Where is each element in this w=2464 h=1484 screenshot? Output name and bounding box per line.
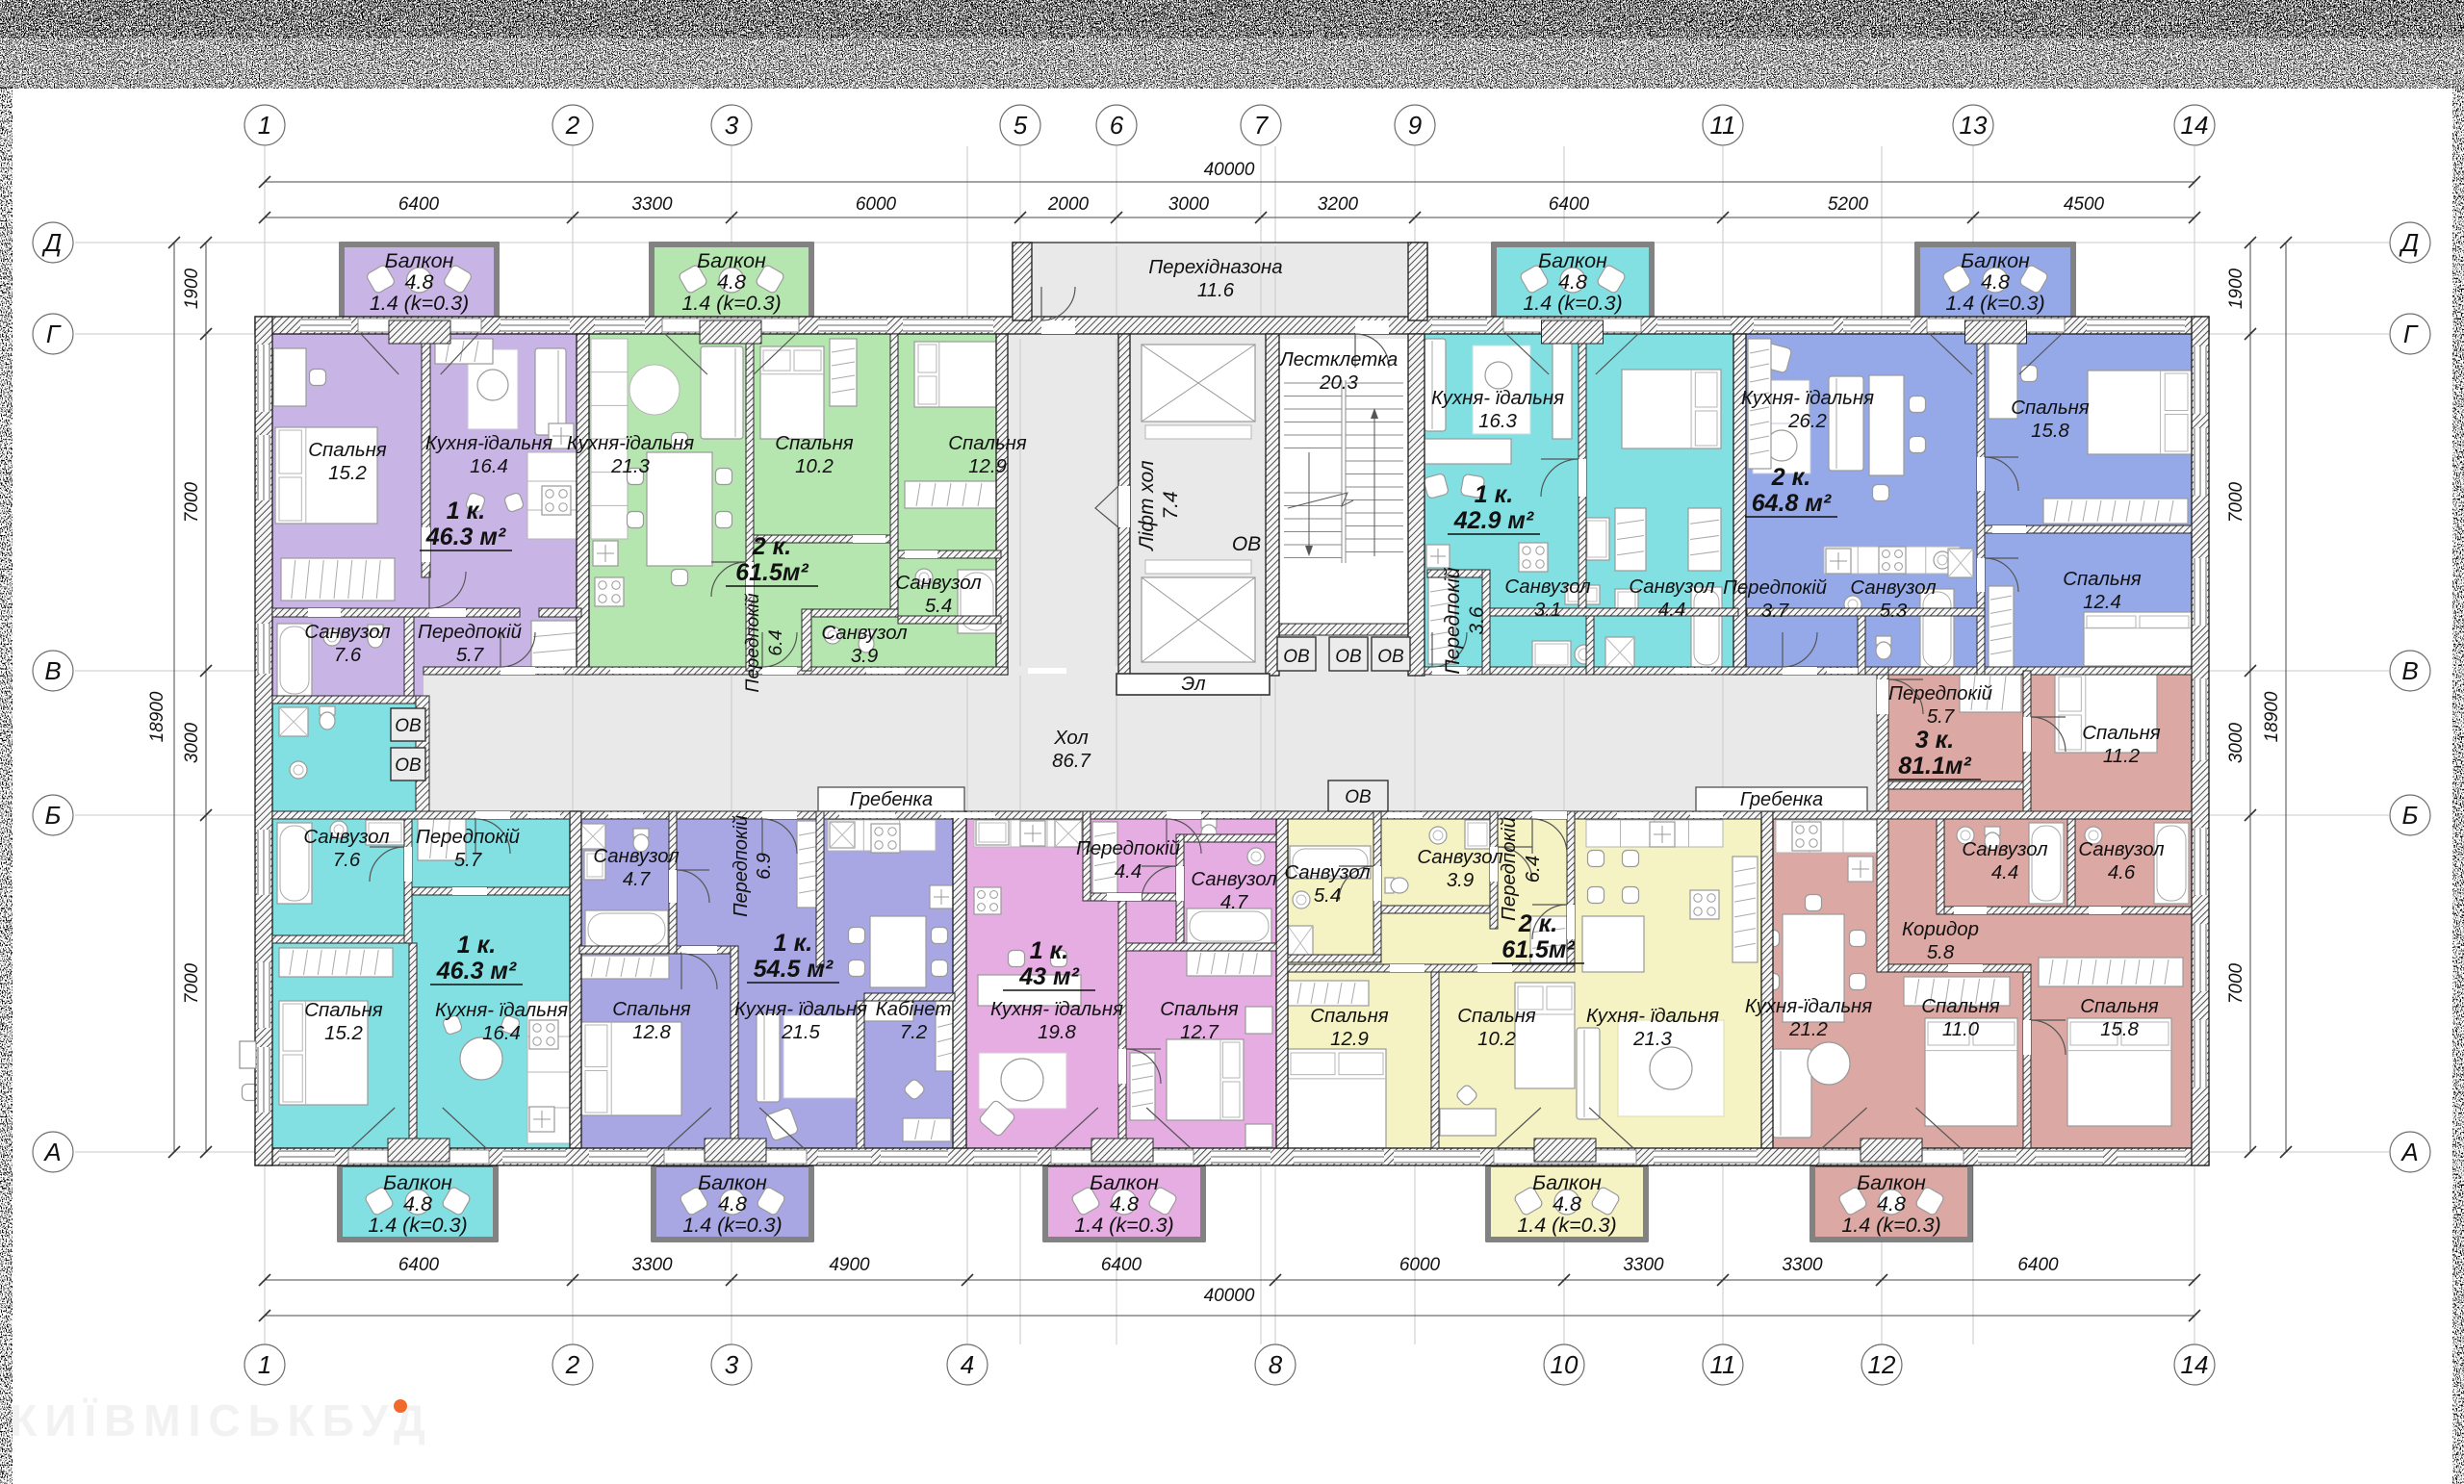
svg-text:В: В bbox=[44, 656, 61, 685]
svg-text:Передпокій: Передпокій bbox=[418, 622, 522, 643]
svg-text:14: 14 bbox=[2181, 1350, 2209, 1379]
svg-text:86.7: 86.7 bbox=[1052, 751, 1091, 772]
svg-text:7.2: 7.2 bbox=[900, 1022, 928, 1043]
svg-text:Спальня: Спальня bbox=[2080, 996, 2159, 1017]
svg-text:4.4: 4.4 bbox=[1115, 861, 1142, 883]
svg-text:21.2: 21.2 bbox=[1788, 1019, 1828, 1040]
svg-text:Балкон: Балкон bbox=[385, 249, 454, 272]
svg-text:Санвузол: Санвузол bbox=[304, 622, 391, 643]
svg-text:Спальня: Спальня bbox=[1310, 1006, 1389, 1027]
svg-text:Д: Д bbox=[41, 228, 62, 257]
svg-text:7000: 7000 bbox=[2226, 962, 2246, 1004]
svg-text:7.6: 7.6 bbox=[334, 645, 362, 666]
svg-text:2 к.: 2 к. bbox=[1518, 910, 1557, 937]
svg-text:1900: 1900 bbox=[2226, 268, 2246, 309]
svg-text:8: 8 bbox=[1269, 1350, 1283, 1379]
svg-text:6.4: 6.4 bbox=[765, 629, 786, 655]
svg-text:6.4: 6.4 bbox=[1523, 856, 1544, 883]
svg-text:3000: 3000 bbox=[1168, 194, 1210, 215]
svg-text:1.4 (k=0.3): 1.4 (k=0.3) bbox=[681, 292, 781, 315]
svg-text:18900: 18900 bbox=[2262, 691, 2282, 742]
svg-text:6400: 6400 bbox=[1549, 194, 1590, 215]
svg-text:12: 12 bbox=[1868, 1350, 1896, 1379]
svg-text:2: 2 bbox=[565, 111, 580, 140]
svg-text:А: А bbox=[42, 1138, 61, 1166]
svg-text:4500: 4500 bbox=[2064, 194, 2105, 215]
svg-text:1.4 (k=0.3): 1.4 (k=0.3) bbox=[1841, 1214, 1940, 1237]
svg-text:Кухня- їдальня: Кухня- їдальня bbox=[734, 999, 867, 1020]
svg-text:19.8: 19.8 bbox=[1038, 1022, 1076, 1043]
svg-text:Гребенка: Гребенка bbox=[850, 789, 933, 810]
svg-text:А: А bbox=[2400, 1138, 2418, 1166]
svg-text:КИЇВМІСЬКБУД: КИЇВМІСЬКБУД bbox=[10, 1395, 432, 1446]
svg-text:Хол: Хол bbox=[1053, 728, 1089, 749]
svg-text:Спальня: Спальня bbox=[2082, 723, 2161, 744]
svg-text:4.8: 4.8 bbox=[403, 1192, 432, 1215]
svg-text:15.8: 15.8 bbox=[2031, 421, 2069, 442]
svg-text:Санвузол: Санвузол bbox=[1962, 839, 2048, 860]
svg-text:Санвузол: Санвузол bbox=[1504, 576, 1591, 598]
svg-text:Передпокій: Передпокій bbox=[731, 815, 752, 917]
svg-text:Спальня: Спальня bbox=[948, 433, 1027, 454]
svg-text:3300: 3300 bbox=[1623, 1255, 1664, 1275]
svg-text:11: 11 bbox=[1710, 1350, 1736, 1379]
svg-text:43 м²: 43 м² bbox=[1018, 963, 1079, 990]
svg-text:15.2: 15.2 bbox=[324, 1023, 363, 1044]
svg-text:10.2: 10.2 bbox=[1477, 1029, 1516, 1050]
svg-text:21.3: 21.3 bbox=[610, 456, 650, 477]
svg-text:Кухня- їдальня: Кухня- їдальня bbox=[435, 1000, 568, 1021]
svg-text:7.4: 7.4 bbox=[1160, 491, 1182, 519]
svg-text:3.9: 3.9 bbox=[1447, 870, 1474, 891]
svg-text:5.3: 5.3 bbox=[1880, 601, 1908, 622]
svg-text:1 к.: 1 к. bbox=[457, 932, 496, 959]
svg-text:4.8: 4.8 bbox=[1981, 270, 2010, 294]
svg-text:Балкон: Балкон bbox=[697, 249, 766, 272]
svg-text:Санвузол: Санвузол bbox=[1191, 869, 1277, 890]
svg-text:14: 14 bbox=[2181, 111, 2209, 140]
svg-text:ОВ: ОВ bbox=[395, 716, 422, 736]
svg-text:7000: 7000 bbox=[182, 962, 202, 1004]
svg-text:26.2: 26.2 bbox=[1787, 411, 1827, 432]
svg-text:4.8: 4.8 bbox=[1110, 1192, 1139, 1215]
svg-text:3000: 3000 bbox=[2226, 722, 2246, 763]
svg-text:12.4: 12.4 bbox=[2083, 592, 2121, 613]
svg-text:Балкон: Балкон bbox=[383, 1171, 452, 1194]
svg-text:4.7: 4.7 bbox=[623, 869, 651, 890]
svg-text:3.1: 3.1 bbox=[1534, 600, 1561, 621]
svg-text:40000: 40000 bbox=[1204, 1286, 1255, 1306]
svg-text:1: 1 bbox=[258, 111, 271, 140]
svg-text:6000: 6000 bbox=[1399, 1255, 1441, 1275]
svg-text:Передпокій: Передпокій bbox=[1499, 817, 1520, 921]
svg-text:Кабінет: Кабінет bbox=[876, 999, 952, 1020]
svg-text:10: 10 bbox=[1551, 1350, 1578, 1379]
svg-text:12.7: 12.7 bbox=[1180, 1022, 1219, 1043]
svg-text:3: 3 bbox=[725, 1350, 739, 1379]
svg-text:7000: 7000 bbox=[2226, 481, 2246, 523]
svg-text:3.7: 3.7 bbox=[1761, 601, 1789, 622]
svg-text:4.6: 4.6 bbox=[2108, 862, 2136, 883]
svg-text:Кухня- їдальня: Кухня- їдальня bbox=[1431, 388, 1564, 409]
svg-text:Санвузол: Санвузол bbox=[303, 827, 390, 848]
svg-text:Кухня- їдальня: Кухня- їдальня bbox=[1741, 388, 1874, 409]
svg-text:5.7: 5.7 bbox=[454, 850, 482, 871]
svg-text:Кухня-їдальня: Кухня-їдальня bbox=[567, 433, 694, 454]
svg-text:7.6: 7.6 bbox=[333, 850, 361, 871]
svg-text:4.4: 4.4 bbox=[1991, 862, 2018, 883]
svg-text:Спальня: Спальня bbox=[1921, 996, 2000, 1017]
svg-text:3 к.: 3 к. bbox=[1915, 727, 1954, 754]
svg-text:5200: 5200 bbox=[1828, 194, 1869, 215]
svg-text:Эл: Эл bbox=[1181, 674, 1205, 695]
svg-text:6.9: 6.9 bbox=[754, 853, 775, 880]
svg-text:Передпокій: Передпокій bbox=[1076, 838, 1180, 859]
svg-text:1.4 (k=0.3): 1.4 (k=0.3) bbox=[370, 292, 469, 315]
svg-text:3.6: 3.6 bbox=[1466, 606, 1488, 635]
svg-text:5.4: 5.4 bbox=[925, 596, 952, 617]
svg-text:1.4 (k=0.3): 1.4 (k=0.3) bbox=[1945, 292, 2044, 315]
svg-text:Спальня: Спальня bbox=[308, 440, 387, 461]
svg-text:4.8: 4.8 bbox=[1553, 1192, 1581, 1215]
svg-text:Санвузол: Санвузол bbox=[1629, 576, 1715, 598]
svg-text:46.3 м²: 46.3 м² bbox=[425, 524, 506, 550]
svg-text:Спальня: Спальня bbox=[2063, 569, 2142, 590]
svg-text:Санвузол: Санвузол bbox=[1284, 862, 1371, 883]
svg-text:2 к.: 2 к. bbox=[1771, 464, 1810, 491]
svg-text:Передпокій: Передпокій bbox=[1888, 683, 1992, 704]
svg-text:61.5м²: 61.5м² bbox=[735, 559, 808, 586]
svg-text:4: 4 bbox=[961, 1350, 974, 1379]
svg-text:5.4: 5.4 bbox=[1314, 885, 1341, 907]
svg-text:Передпокій: Передпокій bbox=[1442, 567, 1464, 674]
svg-text:4.4: 4.4 bbox=[1658, 600, 1685, 621]
svg-text:5: 5 bbox=[1014, 111, 1028, 140]
svg-text:4.8: 4.8 bbox=[717, 270, 746, 294]
svg-text:11.0: 11.0 bbox=[1942, 1019, 1980, 1040]
svg-text:Кухня-їдальня: Кухня-їдальня bbox=[425, 433, 552, 454]
svg-text:64.8 м²: 64.8 м² bbox=[1752, 490, 1832, 517]
svg-text:3: 3 bbox=[725, 111, 739, 140]
svg-text:9: 9 bbox=[1408, 111, 1422, 140]
svg-text:Б: Б bbox=[2402, 801, 2419, 830]
svg-text:81.1м²: 81.1м² bbox=[1898, 753, 1971, 780]
svg-text:Гребенка: Гребенка bbox=[1740, 789, 1823, 810]
svg-text:16.4: 16.4 bbox=[482, 1023, 521, 1044]
svg-text:4.7: 4.7 bbox=[1220, 892, 1248, 913]
svg-text:1: 1 bbox=[258, 1350, 271, 1379]
svg-text:13: 13 bbox=[1960, 111, 1988, 140]
svg-text:Спальня: Спальня bbox=[2011, 397, 2090, 419]
svg-text:6400: 6400 bbox=[1101, 1255, 1142, 1275]
svg-text:ОВ: ОВ bbox=[1283, 647, 1310, 667]
svg-text:Балкон: Балкон bbox=[1961, 249, 2030, 272]
svg-text:Ліфт хол: Ліфт хол bbox=[1136, 460, 1158, 551]
svg-text:Лестклетка: Лестклетка bbox=[1278, 349, 1398, 371]
svg-text:1 к.: 1 к. bbox=[774, 930, 812, 957]
svg-text:1.4 (k=0.3): 1.4 (k=0.3) bbox=[1517, 1214, 1616, 1237]
svg-text:21.3: 21.3 bbox=[1632, 1029, 1672, 1050]
svg-text:Кухня- їдальня: Кухня- їдальня bbox=[1586, 1006, 1719, 1027]
svg-text:ОВ: ОВ bbox=[1377, 647, 1404, 667]
svg-text:7: 7 bbox=[1254, 111, 1270, 140]
svg-text:5.7: 5.7 bbox=[456, 645, 484, 666]
svg-text:3200: 3200 bbox=[1318, 194, 1359, 215]
svg-text:6400: 6400 bbox=[398, 194, 440, 215]
svg-text:Балкон: Балкон bbox=[698, 1171, 767, 1194]
svg-text:Спальня: Спальня bbox=[1160, 999, 1239, 1020]
svg-text:4.8: 4.8 bbox=[1558, 270, 1587, 294]
svg-text:2 к.: 2 к. bbox=[752, 533, 791, 560]
svg-text:Балкон: Балкон bbox=[1532, 1171, 1602, 1194]
svg-text:21.5: 21.5 bbox=[781, 1022, 820, 1043]
svg-text:Балкон: Балкон bbox=[1857, 1171, 1926, 1194]
svg-text:3000: 3000 bbox=[182, 722, 202, 763]
svg-text:3.9: 3.9 bbox=[851, 646, 878, 667]
svg-text:Санвузол: Санвузол bbox=[1417, 847, 1503, 868]
svg-text:Санвузол: Санвузол bbox=[2078, 839, 2165, 860]
svg-text:1900: 1900 bbox=[182, 268, 202, 309]
svg-text:6: 6 bbox=[1110, 111, 1124, 140]
svg-text:5.7: 5.7 bbox=[1927, 706, 1955, 728]
svg-text:1 к.: 1 к. bbox=[1475, 481, 1513, 508]
svg-text:11: 11 bbox=[1710, 111, 1736, 140]
svg-text:Санвузол: Санвузол bbox=[895, 573, 982, 594]
svg-text:6400: 6400 bbox=[398, 1255, 440, 1275]
svg-text:16.4: 16.4 bbox=[470, 456, 508, 477]
svg-text:4.8: 4.8 bbox=[718, 1192, 747, 1215]
svg-text:16.3: 16.3 bbox=[1478, 411, 1517, 432]
svg-text:46.3 м²: 46.3 м² bbox=[436, 958, 517, 985]
svg-text:15.8: 15.8 bbox=[2100, 1019, 2139, 1040]
svg-text:10.2: 10.2 bbox=[795, 456, 834, 477]
svg-text:1 к.: 1 к. bbox=[447, 498, 485, 525]
svg-text:61.5м²: 61.5м² bbox=[1501, 936, 1575, 963]
svg-text:1.4 (k=0.3): 1.4 (k=0.3) bbox=[1523, 292, 1622, 315]
svg-text:Кухня-їдальня: Кухня-їдальня bbox=[1745, 996, 1872, 1017]
svg-text:ОВ: ОВ bbox=[1232, 533, 1261, 555]
svg-text:Г: Г bbox=[2403, 320, 2419, 348]
svg-text:3300: 3300 bbox=[631, 1255, 673, 1275]
svg-text:20.3: 20.3 bbox=[1319, 372, 1358, 394]
svg-text:1.4 (k=0.3): 1.4 (k=0.3) bbox=[368, 1214, 467, 1237]
svg-text:15.2: 15.2 bbox=[328, 463, 367, 484]
svg-text:Спальня: Спальня bbox=[612, 999, 691, 1020]
svg-text:5.8: 5.8 bbox=[1927, 942, 1955, 963]
svg-text:1.4 (k=0.3): 1.4 (k=0.3) bbox=[682, 1214, 782, 1237]
svg-text:12.9: 12.9 bbox=[1330, 1029, 1369, 1050]
svg-text:Кухня- їдальня: Кухня- їдальня bbox=[990, 999, 1123, 1020]
svg-text:2000: 2000 bbox=[1047, 194, 1090, 215]
svg-text:12.9: 12.9 bbox=[968, 456, 1007, 477]
svg-text:Д: Д bbox=[2399, 228, 2419, 257]
svg-text:Балкон: Балкон bbox=[1538, 249, 1607, 272]
svg-text:1.4 (k=0.3): 1.4 (k=0.3) bbox=[1074, 1214, 1173, 1237]
svg-text:Перехідназона: Перехідназона bbox=[1148, 257, 1282, 278]
svg-text:ОВ: ОВ bbox=[1335, 647, 1362, 667]
svg-text:6400: 6400 bbox=[2017, 1255, 2059, 1275]
svg-text:Передпокій: Передпокій bbox=[416, 827, 520, 848]
svg-text:Передпокій: Передпокій bbox=[742, 593, 763, 692]
svg-text:11.2: 11.2 bbox=[2103, 746, 2141, 767]
svg-text:Г: Г bbox=[46, 320, 62, 348]
svg-text:4900: 4900 bbox=[829, 1255, 870, 1275]
svg-text:Санвузол: Санвузол bbox=[1850, 577, 1937, 599]
svg-text:Коридор: Коридор bbox=[1902, 919, 1979, 940]
svg-text:18900: 18900 bbox=[147, 691, 167, 742]
svg-text:В: В bbox=[2401, 656, 2418, 685]
svg-text:12.8: 12.8 bbox=[632, 1022, 671, 1043]
svg-text:Спальня: Спальня bbox=[775, 433, 854, 454]
svg-text:11.6: 11.6 bbox=[1197, 280, 1235, 301]
svg-text:4.8: 4.8 bbox=[1877, 1192, 1906, 1215]
svg-text:Санвузол: Санвузол bbox=[593, 846, 680, 867]
svg-text:Балкон: Балкон bbox=[1090, 1171, 1159, 1194]
svg-text:Спальня: Спальня bbox=[304, 1000, 383, 1021]
svg-text:Б: Б bbox=[45, 801, 62, 830]
svg-text:ОВ: ОВ bbox=[1345, 787, 1372, 807]
svg-text:Передпокій: Передпокій bbox=[1723, 577, 1827, 599]
svg-text:Спальня: Спальня bbox=[1457, 1006, 1536, 1027]
svg-text:7000: 7000 bbox=[182, 481, 202, 523]
svg-text:42.9 м²: 42.9 м² bbox=[1453, 507, 1534, 534]
svg-text:3300: 3300 bbox=[631, 194, 673, 215]
svg-text:1 к.: 1 к. bbox=[1030, 937, 1068, 964]
svg-text:2: 2 bbox=[565, 1350, 580, 1379]
svg-text:54.5 м²: 54.5 м² bbox=[754, 956, 834, 983]
svg-text:3300: 3300 bbox=[1782, 1255, 1823, 1275]
svg-text:Санвузол: Санвузол bbox=[821, 623, 908, 644]
svg-text:6000: 6000 bbox=[856, 194, 897, 215]
svg-text:4.8: 4.8 bbox=[405, 270, 434, 294]
svg-text:ОВ: ОВ bbox=[395, 755, 422, 776]
svg-text:40000: 40000 bbox=[1204, 160, 1255, 180]
